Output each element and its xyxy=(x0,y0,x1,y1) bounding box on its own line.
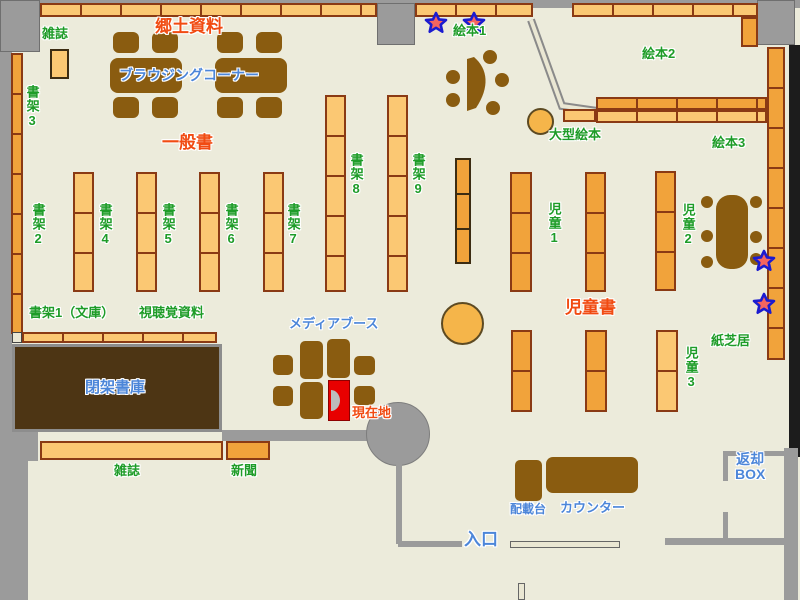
label-loading-table: 配載台 xyxy=(510,503,546,516)
label-entrance: 入口 xyxy=(464,531,498,549)
children-stool xyxy=(750,231,762,243)
label-magazines-top: 雑誌 xyxy=(42,27,68,41)
label-children1: 児童1 xyxy=(547,202,561,246)
shelf-shoka8 xyxy=(325,95,346,292)
media-booth-seat xyxy=(273,386,293,406)
wall-top-left-block xyxy=(0,0,40,52)
children-stool xyxy=(701,230,713,242)
label-magazines-bottom: 雑誌 xyxy=(114,464,140,478)
entrance-post xyxy=(518,583,525,600)
wall-returnbox-bottom xyxy=(665,538,790,545)
label-children2: 児童2 xyxy=(681,203,695,247)
label-return-box-line2: BOX xyxy=(735,467,765,482)
label-browsing-corner: ブラウジングコーナー xyxy=(119,68,259,83)
shelf-top-row-1 xyxy=(40,3,377,17)
storytime-stool xyxy=(483,50,497,64)
storytime-stool xyxy=(446,93,460,107)
media-booth-seat xyxy=(354,356,375,375)
browsing-chair xyxy=(113,32,139,53)
label-shelf8: 書架8 xyxy=(349,153,363,197)
label-shelf3: 書架3 xyxy=(25,85,39,129)
counter-desk xyxy=(546,457,638,493)
label-children-books: 児童書 xyxy=(565,299,616,317)
label-closed-stacks: 閉架書庫 xyxy=(85,380,145,396)
shelf-jido1-b xyxy=(585,172,606,292)
shelf-lower-b xyxy=(585,330,607,412)
shelf-top-row-3 xyxy=(572,3,758,17)
children-table xyxy=(716,195,748,269)
label-picture-books2: 絵本2 xyxy=(642,47,675,61)
label-newspapers: 新聞 xyxy=(231,464,257,478)
label-shelf9: 書架9 xyxy=(411,153,425,197)
wall-bar-to-circle xyxy=(222,430,370,441)
current-location-marker xyxy=(328,380,350,421)
label-picture-books1: 絵本1 xyxy=(453,24,486,38)
shelf-newspapers xyxy=(226,441,270,460)
label-large-picture-books: 大型絵本 xyxy=(549,128,601,142)
shelf-center-dark xyxy=(455,158,471,264)
wall-returnbox-left-upper xyxy=(723,451,728,481)
shelf-lower-a xyxy=(511,330,532,412)
wall-bottom-left-b xyxy=(0,461,28,600)
star-icon xyxy=(752,292,776,316)
label-current-location: 現在地 xyxy=(352,406,391,420)
label-shelf6: 書架6 xyxy=(224,203,238,247)
label-return-box-line1: 返却 xyxy=(735,452,765,467)
label-av-materials: 視聴覚資料 xyxy=(139,306,204,320)
label-return-box: 返却 BOX xyxy=(735,452,765,481)
shelf-ehon-row-bottom xyxy=(596,110,767,123)
children-stool xyxy=(701,256,713,268)
label-media-booth: メディアブース xyxy=(289,317,378,331)
shelf-jido2 xyxy=(655,171,676,291)
shelf-shoka7 xyxy=(263,172,284,292)
shelf-magazines-bottom xyxy=(40,441,223,460)
label-kamishibai: 紙芝居 xyxy=(711,334,750,348)
media-booth-desk xyxy=(300,382,323,419)
wall-top-right-block xyxy=(757,0,795,45)
label-shelf7: 書架7 xyxy=(286,203,300,247)
shelf-shoka6 xyxy=(199,172,220,292)
reading-circle xyxy=(441,302,484,345)
browsing-chair xyxy=(152,97,178,118)
storytime-stool xyxy=(486,101,500,115)
media-booth-seat xyxy=(273,355,293,375)
label-shelf2: 書架2 xyxy=(31,203,45,247)
star-icon xyxy=(752,249,776,273)
label-counter: カウンター xyxy=(560,501,625,515)
browsing-chair xyxy=(113,97,139,118)
person-icon xyxy=(331,390,340,411)
shelf-top-right-corner xyxy=(741,17,758,47)
shelf-shoka9 xyxy=(387,95,408,292)
shelf-magazine-rack-top xyxy=(50,49,69,79)
label-children3: 児童3 xyxy=(684,346,698,390)
browsing-chair xyxy=(256,32,282,53)
library-floor-map: 雑誌 郷土資料 ブラウジングコーナー 書架3 一般書 書架2 書架4 書架5 書… xyxy=(0,0,800,600)
shelf-shoka5 xyxy=(136,172,157,292)
media-booth-desk xyxy=(327,339,350,378)
entrance-door xyxy=(510,541,620,548)
shelf-left-wall xyxy=(11,53,23,334)
children-stool xyxy=(701,196,713,208)
shelf-jido3 xyxy=(656,330,678,412)
wall-pillar-top xyxy=(377,3,415,45)
wall-right-black xyxy=(789,45,800,457)
shelf-jido1-a xyxy=(510,172,532,292)
wall-right-bottom xyxy=(784,448,798,600)
label-shelf1-bunko: 書架1（文庫） xyxy=(29,306,114,320)
shelf-ehon-single xyxy=(563,109,596,122)
shelf-bottom-row-cap xyxy=(12,332,22,343)
wall-entrance-horizontal xyxy=(398,541,462,547)
shelf-bottom-row xyxy=(22,332,217,343)
label-shelf5: 書架5 xyxy=(161,203,175,247)
shelf-shoka4 xyxy=(73,172,94,292)
wall-entrance-vertical xyxy=(396,464,402,544)
loading-table xyxy=(515,460,542,501)
diagonal-partition xyxy=(520,15,605,120)
storytime-stool xyxy=(495,73,509,87)
media-booth-seat xyxy=(354,386,375,405)
children-stool xyxy=(750,196,762,208)
label-general-books: 一般書 xyxy=(162,134,213,152)
shelf-ehon-row-top xyxy=(596,97,767,110)
media-booth-desk xyxy=(300,341,323,379)
label-shelf4: 書架4 xyxy=(98,203,112,247)
browsing-chair xyxy=(217,97,243,118)
star-icon xyxy=(424,11,448,35)
browsing-chair xyxy=(256,97,282,118)
storytime-stool xyxy=(446,70,460,84)
label-picture-books3: 絵本3 xyxy=(712,136,745,150)
label-local-materials: 郷土資料 xyxy=(155,18,223,36)
